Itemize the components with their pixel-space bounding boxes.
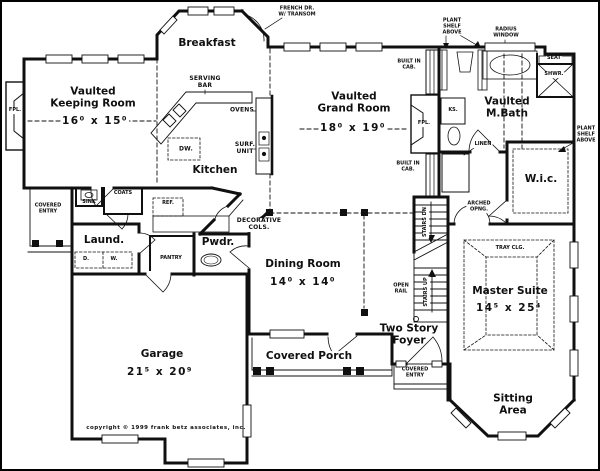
fireplace-left-label: FPL. — [8, 108, 22, 114]
radius-window-label: RADIUS WINDOW — [493, 27, 518, 39]
floor-plan: FRENCH DR. W/ TRANSOM Breakfast SERVING … — [0, 0, 600, 471]
porch-post — [253, 367, 261, 375]
stairs-up-label: STAIRS UP — [424, 276, 430, 307]
arched-opening-label: ARCHED OPNG. — [466, 201, 491, 213]
plant-shelf-right-label: PLANT SHELF ABOVE — [575, 126, 596, 143]
wc-toilet-icon — [448, 127, 460, 145]
washer-label: W. — [110, 257, 117, 263]
room-label-master: Master Suite — [472, 286, 548, 298]
entry-post — [32, 240, 39, 247]
garage-dims: 21⁵ x 20⁹ — [127, 367, 193, 379]
bar-sink-icon — [173, 104, 186, 117]
keeping-dims: 16⁰ x 15⁰ — [61, 116, 129, 128]
room-label-kitchen: Kitchen — [192, 165, 237, 177]
decorative-cols-label: DECORATIVE COLS. — [236, 218, 282, 232]
sink-label: SINK — [82, 200, 96, 206]
ovens-label: OVENS — [230, 108, 254, 115]
interior-walls — [76, 54, 574, 270]
refrigerator-label: REF. — [161, 201, 175, 207]
linen-label: LINEN — [474, 142, 493, 148]
built-in-cabinet-bottom — [426, 154, 439, 198]
room-label-grand: Vaulted Grand Room — [318, 91, 391, 115]
bathtub-icon — [483, 51, 537, 79]
seat-label: SEAT — [546, 56, 562, 62]
tray-ceiling-label: TRAY CLG. — [495, 246, 526, 252]
pantry-closet — [150, 236, 194, 270]
porch-post — [356, 367, 364, 375]
room-label-mbath: Vaulted M.Bath — [484, 96, 529, 120]
shower-label: SHWR. — [543, 72, 564, 78]
knee-space-label: KS. — [447, 108, 458, 114]
room-label-keeping: Vaulted Keeping Room — [50, 86, 135, 110]
fireplace-left-icon — [6, 82, 24, 150]
bar-sink-icon — [163, 114, 176, 127]
room-label-porch: Covered Porch — [265, 351, 353, 363]
copyright-notice: copyright © 1999 frank betz associates, … — [86, 425, 246, 431]
room-label-breakfast: Breakfast — [178, 38, 235, 50]
built-in-cabinet-top — [426, 50, 439, 94]
radius-window — [485, 43, 535, 51]
ovens-cabinet — [256, 96, 272, 174]
room-label-foyer: Two Story Foyer — [380, 323, 438, 347]
dining-dims: 14⁰ x 14⁰ — [270, 277, 336, 289]
built-in-cab-top-label: BUILT IN CAB. — [396, 59, 421, 71]
coats-label: COATS — [114, 191, 132, 197]
column-icon — [361, 209, 368, 216]
column-icon — [266, 209, 273, 216]
toilet-icon — [457, 52, 473, 72]
plant-shelf-icons — [438, 50, 487, 90]
column-icon — [361, 309, 368, 316]
fireplace-right-label: FPL. — [417, 121, 431, 127]
room-label-dining: Dining Room — [265, 259, 341, 271]
surf-unit-label: SURF. UNIT — [235, 142, 255, 156]
serving-bar-label: SERVING BAR — [189, 76, 220, 90]
dryer-label: D. — [83, 257, 89, 263]
room-label-sitting: Sitting Area — [493, 393, 533, 417]
fine-dashed — [75, 138, 568, 350]
grand-dims: 18⁰ x 19⁰ — [320, 123, 386, 135]
covered-entry-left-label: COVERED ENTRY — [35, 203, 62, 215]
room-label-garage: Garage — [141, 349, 184, 361]
serving-bar-counter — [151, 92, 252, 144]
stairs-icon — [414, 197, 449, 322]
built-in-cab-bottom-label: BUILT IN CAB. — [395, 161, 420, 173]
powder-sink-icon — [201, 254, 221, 266]
dishwasher-label: DW. — [178, 147, 194, 154]
plant-shelf-top-label: PLANT SHELF ABOVE — [441, 18, 462, 35]
porch-post — [266, 367, 274, 375]
room-label-laundry: Laund. — [84, 235, 124, 247]
porch-post — [343, 367, 351, 375]
covered-entry-front-label: COVERED ENTRY — [401, 367, 430, 379]
pantry-label: PANTRY — [160, 256, 182, 262]
open-rail-label: OPEN RAIL — [393, 283, 409, 295]
stairs-dn-label: STAIRS DN — [423, 206, 429, 238]
room-label-pwdr: Pwdr. — [202, 237, 235, 249]
linen-closet — [442, 154, 469, 192]
french-door-label: FRENCH DR. W/ TRANSOM — [278, 6, 315, 18]
room-label-wic: W.i.c. — [524, 174, 559, 186]
entry-post — [56, 240, 63, 247]
column-icon — [340, 209, 347, 216]
master-dims: 14⁵ x 25⁴ — [476, 303, 542, 315]
